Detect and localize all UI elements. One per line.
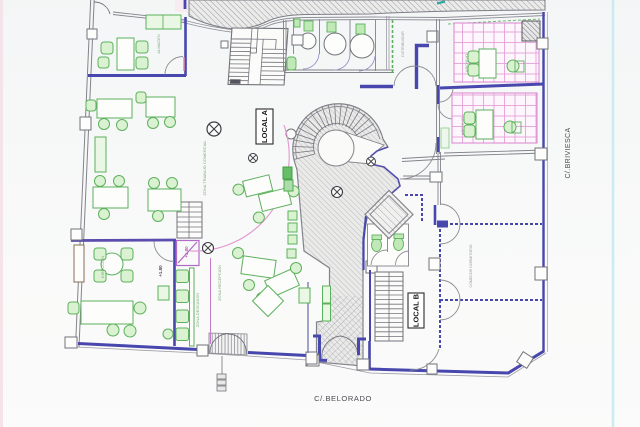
svg-text:+1.80: +1.80 bbox=[158, 265, 163, 277]
svg-text:ALMACEN: ALMACEN bbox=[156, 34, 161, 53]
svg-text:DIRECCION: DIRECCION bbox=[100, 256, 105, 279]
svg-text:LOCAL A: LOCAL A bbox=[260, 109, 269, 142]
svg-text:+1.80: +1.80 bbox=[184, 246, 189, 258]
svg-text:C/.BELORADO: C/.BELORADO bbox=[314, 394, 372, 403]
svg-text:ARCHIVO: ARCHIVO bbox=[460, 117, 465, 135]
svg-text:ZONA RECEPCION: ZONA RECEPCION bbox=[217, 265, 222, 301]
svg-text:COMEDOR DORMITORIO: COMEDOR DORMITORIO bbox=[469, 244, 473, 287]
svg-text:C/.BRIVIESCA: C/.BRIVIESCA bbox=[565, 127, 572, 178]
svg-text:ARCHIVO: ARCHIVO bbox=[464, 54, 469, 72]
svg-text:ZONA DESCANSO: ZONA DESCANSO bbox=[195, 293, 200, 327]
svg-text:LOCAL B: LOCAL B bbox=[412, 293, 421, 327]
svg-text:DISTRIBUIDOR: DISTRIBUIDOR bbox=[401, 31, 405, 57]
svg-text:ZONA TRABAJO COMERCIAL: ZONA TRABAJO COMERCIAL bbox=[202, 140, 207, 196]
